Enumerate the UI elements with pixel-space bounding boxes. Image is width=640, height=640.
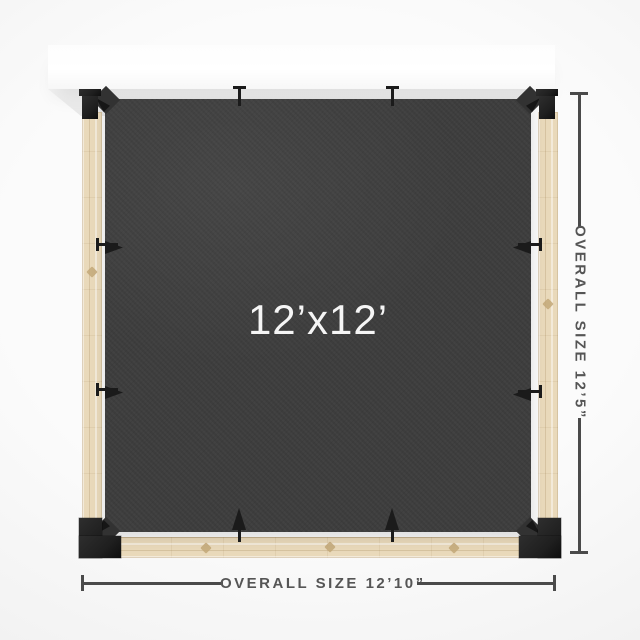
attachment-tab-icon — [238, 86, 241, 106]
height-dimension-end-cap-bottom — [570, 551, 588, 554]
width-dimension-line — [81, 582, 223, 585]
corner-bracket-top-left — [79, 89, 101, 96]
wood-post-left — [82, 112, 102, 520]
corner-bracket-bottom-left — [79, 536, 121, 558]
height-dimension-line — [578, 418, 581, 553]
ledger-board — [48, 45, 555, 89]
width-dimension-end-cap-right — [553, 575, 556, 591]
corner-bracket-top-right — [539, 96, 555, 119]
width-dimension-label: OVERALL SIZE 12’10” — [220, 575, 420, 592]
height-dimension-label: OVERALL SIZE 12’5” — [572, 198, 589, 448]
wood-beam-bottom — [119, 537, 522, 558]
corner-bracket-top-right — [536, 89, 558, 96]
corner-bracket-bottom-right — [519, 536, 561, 558]
attachment-tab-icon — [391, 528, 394, 542]
corner-bracket-top-left — [82, 96, 98, 119]
width-dimension-line — [417, 582, 555, 585]
attachment-tab-icon — [238, 528, 241, 542]
canopy-size-label: 12’x12’ — [105, 296, 531, 344]
product-diagram: 12’x12’ OVERALL SIZE 12’5” OVERALL SIZE … — [0, 0, 640, 640]
wood-post-right — [538, 112, 558, 520]
attachment-tab-icon — [391, 86, 394, 106]
